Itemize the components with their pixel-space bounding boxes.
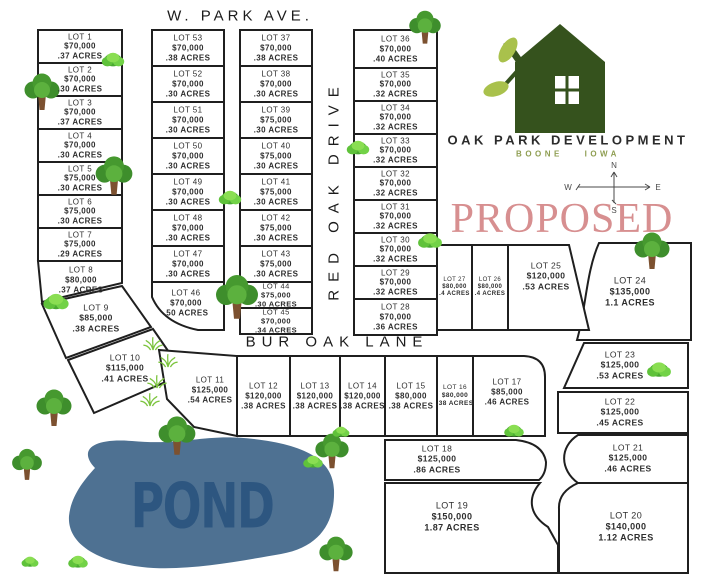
lot-18-label: LOT 18$125,000.86 ACRES: [413, 443, 460, 474]
lot-acres: .4 ACRES: [475, 291, 506, 298]
lot-price: $120,000: [293, 391, 338, 401]
street-label-red-oak-drive: RED OAK DRIVE: [326, 79, 343, 301]
lot-16-label: LOT 16$80,000.38 ACRES: [437, 384, 474, 408]
lot-46-label: LOT 46$70,000.50 ACRES: [164, 288, 209, 317]
lot-price: $150,000: [424, 512, 479, 523]
lot-price: $70,000: [373, 44, 418, 54]
lot-acres: .38 ACRES: [389, 401, 434, 411]
lot-28-label: LOT 28$70,000.36 ACRES: [373, 302, 418, 331]
lot-acres: .38 ACRES: [166, 53, 211, 63]
lot-price: $75,000: [255, 290, 297, 299]
lot-price: $70,000: [166, 151, 211, 161]
lot-number: LOT 31: [373, 202, 418, 212]
lot-26-label: LOT 26$80,000.4 ACRES: [475, 277, 506, 299]
lot-price: $70,000: [373, 179, 418, 189]
lot-4-label: LOT 4$70,000.30 ACRES: [58, 131, 103, 160]
lot-38-label: LOT 38$70,000.30 ACRES: [254, 69, 299, 98]
lot-price: $120,000: [340, 391, 385, 401]
lot-number: LOT 23: [596, 349, 643, 359]
lot-2-label: LOT 2$70,000.30 ACRES: [58, 65, 103, 94]
lot-36-label: LOT 36$70,000.40 ACRES: [373, 34, 418, 63]
lot-number: LOT 48: [166, 213, 211, 223]
lot-number: LOT 22: [596, 396, 643, 406]
lot-number: LOT 15: [389, 381, 434, 391]
lot-price: $125,000: [596, 407, 643, 417]
lot-price: $70,000: [166, 259, 211, 269]
lot-number: LOT 2: [58, 65, 103, 75]
lot-price: $70,000: [373, 146, 418, 156]
lot-number: LOT 7: [58, 230, 103, 240]
lot-1-label: LOT 1$70,000.37 ACRES: [58, 32, 103, 61]
lot-number: LOT 38: [254, 69, 299, 79]
lot-10-label: LOT 10$115,000.41 ACRES: [101, 352, 148, 383]
lot-acres: .30 ACRES: [254, 125, 299, 135]
lot-number: LOT 32: [373, 169, 418, 179]
lot-number: LOT 11: [188, 375, 233, 385]
lot-acres: .50 ACRES: [164, 308, 209, 318]
lot-number: LOT 41: [254, 177, 299, 187]
lot-24-label: LOT 24$135,0001.1 ACRES: [605, 276, 655, 309]
proposed-watermark: PROPOSED: [451, 195, 674, 243]
lot-acres: .38 ACRES: [254, 53, 299, 63]
lot-25-label: LOT 25$120,000.53 ACRES: [522, 260, 569, 291]
lot-acres: .30 ACRES: [58, 84, 103, 94]
lot-acres: .38 ACRES: [293, 401, 338, 411]
lot-acres: 1.87 ACRES: [424, 522, 479, 533]
lot-number: LOT 20: [598, 511, 653, 522]
lot-acres: .32 ACRES: [373, 155, 418, 165]
lot-price: $80,000: [475, 284, 506, 291]
lot-acres: .30 ACRES: [166, 161, 211, 171]
lot-23-label: LOT 23$125,000.53 ACRES: [596, 349, 643, 380]
lot-number: LOT 12: [241, 381, 286, 391]
lot-acres: .30 ACRES: [254, 197, 299, 207]
lot-21-label: LOT 21$125,000.46 ACRES: [604, 442, 651, 473]
lot-41-label: LOT 41$75,000.30 ACRES: [254, 177, 299, 206]
street-label-w-park-ave: W. PARK AVE.: [167, 8, 313, 25]
logo-title: OAK PARK DEVELOPMENT: [448, 133, 689, 148]
lot-price: $75,000: [254, 187, 299, 197]
lot-20-label: LOT 20$140,0001.12 ACRES: [598, 511, 653, 544]
lot-price: $120,000: [241, 391, 286, 401]
lot-number: LOT 21: [604, 442, 651, 452]
lot-number: LOT 14: [340, 381, 385, 391]
lot-price: $70,000: [255, 316, 297, 325]
lot-30-label: LOT 30$70,000.32 ACRES: [373, 235, 418, 264]
lot-13-label: LOT 13$120,000.38 ACRES: [293, 381, 338, 410]
lot-price: $125,000: [188, 385, 233, 395]
lot-price: $75,000: [254, 259, 299, 269]
lot-acres: .30 ACRES: [254, 89, 299, 99]
lot-price: $125,000: [604, 453, 651, 463]
lot-number: LOT 13: [293, 381, 338, 391]
lot-11-label: LOT 11$125,000.54 ACRES: [188, 375, 233, 404]
lot-37-label: LOT 37$70,000.38 ACRES: [254, 33, 299, 62]
lot-acres: .30 ACRES: [58, 183, 103, 193]
lot-48-label: LOT 48$70,000.30 ACRES: [166, 213, 211, 242]
lot-number: LOT 5: [58, 164, 103, 174]
lot-52-label: LOT 52$70,000.30 ACRES: [166, 69, 211, 98]
logo-subtitle: BOONE IOWA: [516, 150, 620, 159]
lot-45-label: LOT 45$70,000.34 ACRES: [255, 307, 297, 334]
lot-price: $140,000: [598, 522, 653, 533]
plat-map: N E S W W. PARK AVE. RED OAK DRIVE BUR O…: [0, 0, 701, 588]
lot-47-label: LOT 47$70,000.30 ACRES: [166, 249, 211, 278]
lot-number: LOT 6: [58, 197, 103, 207]
lot-number: LOT 3: [58, 98, 103, 108]
lot-price: $85,000: [72, 313, 119, 323]
lot-9-label: LOT 9$85,000.38 ACRES: [72, 302, 119, 333]
lot-3-label: LOT 3$70,000.37 ACRES: [58, 98, 103, 127]
lot-acres: .30 ACRES: [58, 150, 103, 160]
lot-17-label: LOT 17$85,000.46 ACRES: [485, 377, 530, 406]
lot-acres: .29 ACRES: [58, 249, 103, 259]
lot-53-label: LOT 53$70,000.38 ACRES: [166, 33, 211, 62]
lot-price: $80,000: [439, 284, 470, 291]
lot-number: LOT 43: [254, 249, 299, 259]
lot-number: LOT 30: [373, 235, 418, 245]
lot-price: $75,000: [254, 151, 299, 161]
lot-number: LOT 36: [373, 34, 418, 44]
lot-42-label: LOT 42$75,000.30 ACRES: [254, 213, 299, 242]
lot-32-label: LOT 32$70,000.32 ACRES: [373, 169, 418, 198]
lot-price: $80,000: [389, 391, 434, 401]
street-label-bur-oak-lane: BUR OAK LANE: [246, 334, 429, 351]
lot-number: LOT 24: [605, 276, 655, 287]
lot-acres: 1.1 ACRES: [605, 297, 655, 308]
lot-acres: .45 ACRES: [596, 417, 643, 427]
lot-number: LOT 27: [439, 277, 470, 284]
lot-number: LOT 9: [72, 302, 119, 312]
lot-15-label: LOT 15$80,000.38 ACRES: [389, 381, 434, 410]
lot-acres: .32 ACRES: [373, 89, 418, 99]
lot-number: LOT 50: [166, 141, 211, 151]
pond-label: POND: [131, 471, 274, 544]
lot-price: $135,000: [605, 287, 655, 298]
lot-price: $125,000: [596, 360, 643, 370]
lot-number: LOT 47: [166, 249, 211, 259]
lot-acres: .41 ACRES: [101, 373, 148, 383]
lot-acres: .30 ACRES: [254, 161, 299, 171]
lot-number: LOT 33: [373, 136, 418, 146]
lot-6-label: LOT 6$75,000.30 ACRES: [58, 197, 103, 226]
lot-price: $115,000: [101, 363, 148, 373]
lot-51-label: LOT 51$70,000.30 ACRES: [166, 105, 211, 134]
lot-acres: .30 ACRES: [166, 197, 211, 207]
lot-acres: .40 ACRES: [373, 54, 418, 64]
lot-acres: .4 ACRES: [439, 291, 470, 298]
lot-acres: .32 ACRES: [373, 254, 418, 264]
lot-acres: .30 ACRES: [166, 89, 211, 99]
lot-33-label: LOT 33$70,000.32 ACRES: [373, 136, 418, 165]
lot-number: LOT 8: [59, 265, 104, 275]
lot-number: LOT 16: [437, 384, 474, 392]
lot-price: $70,000: [373, 80, 418, 90]
lot-number: LOT 44: [255, 281, 297, 290]
lot-7-label: LOT 7$75,000.29 ACRES: [58, 230, 103, 259]
lot-price: $70,000: [166, 223, 211, 233]
lot-price: $75,000: [254, 223, 299, 233]
lot-price: $70,000: [373, 113, 418, 123]
lot-34-label: LOT 34$70,000.32 ACRES: [373, 103, 418, 132]
lot-43-label: LOT 43$75,000.30 ACRES: [254, 249, 299, 278]
lot-50-label: LOT 50$70,000.30 ACRES: [166, 141, 211, 170]
lot-price: $80,000: [437, 392, 474, 400]
lot-number: LOT 17: [485, 377, 530, 387]
lot-acres: .30 ACRES: [58, 216, 103, 226]
lot-acres: .54 ACRES: [188, 395, 233, 405]
lot-49-label: LOT 49$70,000.30 ACRES: [166, 177, 211, 206]
lot-acres: .38 ACRES: [72, 323, 119, 333]
lot-number: LOT 35: [373, 70, 418, 80]
lot-acres: .32 ACRES: [373, 188, 418, 198]
lot-8-label: LOT 8$80,000.37 ACRES: [59, 265, 104, 294]
lot-acres: .37 ACRES: [58, 117, 103, 127]
lot-price: $70,000: [373, 312, 418, 322]
lot-acres: .36 ACRES: [373, 322, 418, 332]
lot-price: $70,000: [164, 298, 209, 308]
lot-44-label: LOT 44$75,000.30 ACRES: [255, 281, 297, 308]
lot-price: $70,000: [166, 79, 211, 89]
lot-29-label: LOT 29$70,000.32 ACRES: [373, 268, 418, 297]
lot-price: $85,000: [485, 387, 530, 397]
lot-number: LOT 42: [254, 213, 299, 223]
lot-price: $70,000: [254, 43, 299, 53]
lot-price: $75,000: [58, 207, 103, 217]
lot-price: $70,000: [58, 42, 103, 52]
lot-price: $80,000: [59, 275, 104, 285]
lot-acres: .32 ACRES: [373, 122, 418, 132]
lot-acres: .34 ACRES: [255, 326, 297, 335]
lot-price: $75,000: [254, 115, 299, 125]
lot-price: $70,000: [166, 115, 211, 125]
lot-31-label: LOT 31$70,000.32 ACRES: [373, 202, 418, 231]
lot-number: LOT 34: [373, 103, 418, 113]
lot-price: $70,000: [166, 43, 211, 53]
lot-5-label: LOT 5$75,000.30 ACRES: [58, 164, 103, 193]
lot-22-label: LOT 22$125,000.45 ACRES: [596, 396, 643, 427]
lot-acres: .30 ACRES: [166, 233, 211, 243]
lot-27-label: LOT 27$80,000.4 ACRES: [439, 277, 470, 299]
lot-acres: .38 ACRES: [437, 400, 474, 408]
lot-price: $70,000: [373, 245, 418, 255]
lot-acres: .32 ACRES: [373, 287, 418, 297]
lot-price: $120,000: [522, 271, 569, 281]
lot-number: LOT 53: [166, 33, 211, 43]
lot-price: $70,000: [58, 141, 103, 151]
lot-14-label: LOT 14$120,000.38 ACRES: [340, 381, 385, 410]
lot-number: LOT 52: [166, 69, 211, 79]
lot-35-label: LOT 35$70,000.32 ACRES: [373, 70, 418, 99]
lot-acres: .37 ACRES: [58, 51, 103, 61]
lot-acres: .46 ACRES: [604, 463, 651, 473]
lot-acres: .30 ACRES: [254, 233, 299, 243]
lot-12-label: LOT 12$120,000.38 ACRES: [241, 381, 286, 410]
lot-price: $70,000: [373, 212, 418, 222]
lot-acres: .32 ACRES: [373, 221, 418, 231]
lot-price: $70,000: [166, 187, 211, 197]
lot-acres: .30 ACRES: [166, 125, 211, 135]
lot-acres: .53 ACRES: [522, 281, 569, 291]
lot-number: LOT 46: [164, 288, 209, 298]
lot-acres: .53 ACRES: [596, 370, 643, 380]
lot-acres: .46 ACRES: [485, 397, 530, 407]
lot-number: LOT 39: [254, 105, 299, 115]
lot-number: LOT 28: [373, 302, 418, 312]
lot-acres: .38 ACRES: [340, 401, 385, 411]
lot-number: LOT 19: [424, 501, 479, 512]
lot-acres: 1.12 ACRES: [598, 532, 653, 543]
lot-price: $75,000: [58, 174, 103, 184]
lot-price: $70,000: [373, 278, 418, 288]
labels-layer: W. PARK AVE. RED OAK DRIVE BUR OAK LANE …: [0, 0, 701, 588]
lot-19-label: LOT 19$150,0001.87 ACRES: [424, 501, 479, 534]
lot-number: LOT 37: [254, 33, 299, 43]
lot-number: LOT 51: [166, 105, 211, 115]
lot-number: LOT 49: [166, 177, 211, 187]
lot-number: LOT 1: [58, 32, 103, 42]
lot-40-label: LOT 40$75,000.30 ACRES: [254, 141, 299, 170]
lot-acres: .37 ACRES: [59, 285, 104, 295]
lot-price: $70,000: [58, 75, 103, 85]
lot-number: LOT 29: [373, 268, 418, 278]
lot-number: LOT 40: [254, 141, 299, 151]
lot-price: $70,000: [58, 108, 103, 118]
lot-acres: .38 ACRES: [241, 401, 286, 411]
lot-number: LOT 4: [58, 131, 103, 141]
lot-number: LOT 18: [413, 443, 460, 453]
lot-number: LOT 45: [255, 307, 297, 316]
lot-price: $125,000: [413, 454, 460, 464]
lot-number: LOT 10: [101, 352, 148, 362]
lot-number: LOT 25: [522, 260, 569, 270]
lot-acres: .30 ACRES: [166, 269, 211, 279]
lot-39-label: LOT 39$75,000.30 ACRES: [254, 105, 299, 134]
lot-price: $75,000: [58, 240, 103, 250]
lot-number: LOT 26: [475, 277, 506, 284]
lot-price: $70,000: [254, 79, 299, 89]
lot-acres: .30 ACRES: [254, 269, 299, 279]
lot-acres: .86 ACRES: [413, 464, 460, 474]
